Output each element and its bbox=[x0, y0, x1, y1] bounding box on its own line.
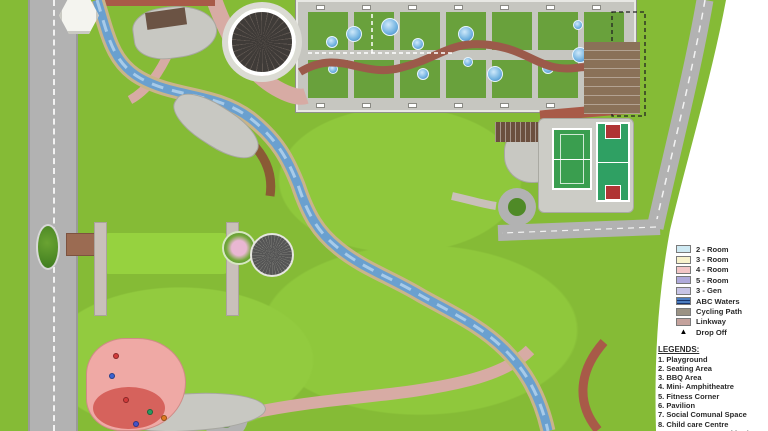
drop-off-triangle-icon: ▲ bbox=[676, 328, 691, 336]
legend-row-room4: 4 - Room bbox=[676, 265, 768, 275]
legend-swatch-room3 bbox=[676, 256, 691, 264]
mini-amphitheatre-structure bbox=[250, 233, 294, 277]
legend-label: 3 - Room bbox=[696, 255, 729, 264]
legend-numbered-list: 1. Playground2. Seating Area3. BBQ Area4… bbox=[650, 355, 768, 431]
legend-row-abc: ABC Waters bbox=[676, 296, 768, 306]
legend-label: Linkway bbox=[696, 317, 726, 326]
linkway-roundabout-east bbox=[452, 196, 496, 206]
legend-row-cycling: Cycling Path bbox=[676, 306, 768, 316]
legend-swatch-cycling bbox=[676, 308, 691, 316]
roundabout-east-island bbox=[508, 198, 526, 216]
legend-label: 3 - Gen bbox=[696, 286, 722, 295]
legend-row-dropoff: ▲Drop Off bbox=[676, 327, 768, 337]
legend-swatch-room2 bbox=[676, 245, 691, 253]
temporary-carpark bbox=[584, 42, 640, 114]
legend-label: ABC Waters bbox=[696, 297, 740, 306]
legend-row-room2: 2 - Room bbox=[676, 244, 768, 254]
legend-item: 4. Mini- Amphitheatre bbox=[658, 382, 768, 391]
play-equipment-icon bbox=[113, 353, 119, 359]
legend-item: 7. Social Comunal Space bbox=[658, 410, 768, 419]
bbq-pergola bbox=[145, 7, 187, 29]
playground-softfall bbox=[93, 387, 165, 429]
tennis-net-line bbox=[554, 159, 590, 160]
legend-title: LEGENDS: bbox=[658, 345, 768, 354]
legend-item: 6. Pavilion bbox=[658, 401, 768, 410]
legend-item: 1. Playground bbox=[658, 355, 768, 364]
legend-row-room5: 5 - Room bbox=[676, 275, 768, 285]
play-equipment-icon bbox=[147, 409, 153, 415]
cycling-path-southeast bbox=[583, 342, 604, 430]
legend-swatch-gen3 bbox=[676, 287, 691, 295]
legend-item: 8. Child care Centre bbox=[658, 420, 768, 429]
play-equipment-icon bbox=[133, 421, 139, 427]
basketball-key bbox=[605, 124, 621, 139]
play-equipment-icon bbox=[161, 415, 167, 421]
play-equipment-icon bbox=[123, 397, 129, 403]
legend-label: Drop Off bbox=[696, 328, 727, 337]
legend-swatch-room5 bbox=[676, 276, 691, 284]
social-comunal-space-structure bbox=[228, 8, 296, 76]
legend-row-linkway: Linkway bbox=[676, 317, 768, 327]
legend-swatch-abc bbox=[676, 297, 691, 305]
legend-label: 2 - Room bbox=[696, 245, 729, 254]
legend-swatch-room4 bbox=[676, 266, 691, 274]
legend-label: 5 - Room bbox=[696, 276, 729, 285]
play-equipment-icon bbox=[109, 373, 115, 379]
site-plan: 637891011125513143412ABCDE▲▲▲▲✕✕✕✕✕✕✕✕✕✕… bbox=[0, 0, 768, 431]
basketball-court bbox=[596, 122, 630, 202]
legend-row-gen3: 3 - Gen bbox=[676, 286, 768, 296]
legend-swatch-list: 2 - Room3 - Room4 - Room5 - Room3 - GenA… bbox=[650, 244, 768, 338]
legend-item: 2. Seating Area bbox=[658, 364, 768, 373]
garden-winding-path bbox=[300, 44, 632, 88]
legend-panel: 2 - Room3 - Room4 - Room5 - Room3 - GenA… bbox=[650, 244, 768, 431]
basketball-midline bbox=[598, 162, 628, 163]
basketball-key bbox=[605, 185, 621, 200]
legend-swatch-linkway bbox=[676, 318, 691, 326]
legend-label: Cycling Path bbox=[696, 307, 742, 316]
tennis-court bbox=[552, 128, 592, 190]
linkway-bottom bbox=[247, 350, 530, 414]
legend-item: 3. BBQ Area bbox=[658, 373, 768, 382]
legend-item: 5. Fitness Corner bbox=[658, 392, 768, 401]
legend-label: 4 - Room bbox=[696, 265, 729, 274]
legend-row-room3: 3 - Room bbox=[676, 254, 768, 264]
